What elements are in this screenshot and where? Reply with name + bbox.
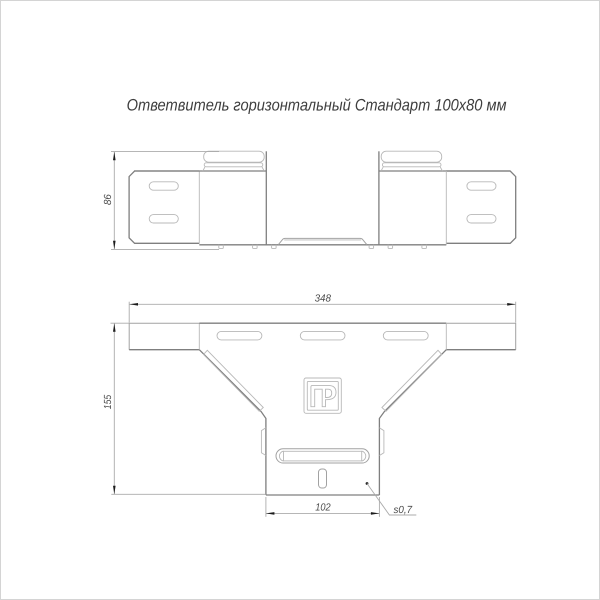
- svg-text:s0,7: s0,7: [394, 505, 414, 516]
- svg-text:155: 155: [103, 395, 114, 410]
- svg-text:Ответвитель горизонтальный Ста: Ответвитель горизонтальный Стандарт 100х…: [127, 95, 508, 114]
- svg-text:348: 348: [315, 294, 332, 305]
- svg-text:86: 86: [103, 194, 114, 205]
- svg-text:102: 102: [315, 502, 331, 513]
